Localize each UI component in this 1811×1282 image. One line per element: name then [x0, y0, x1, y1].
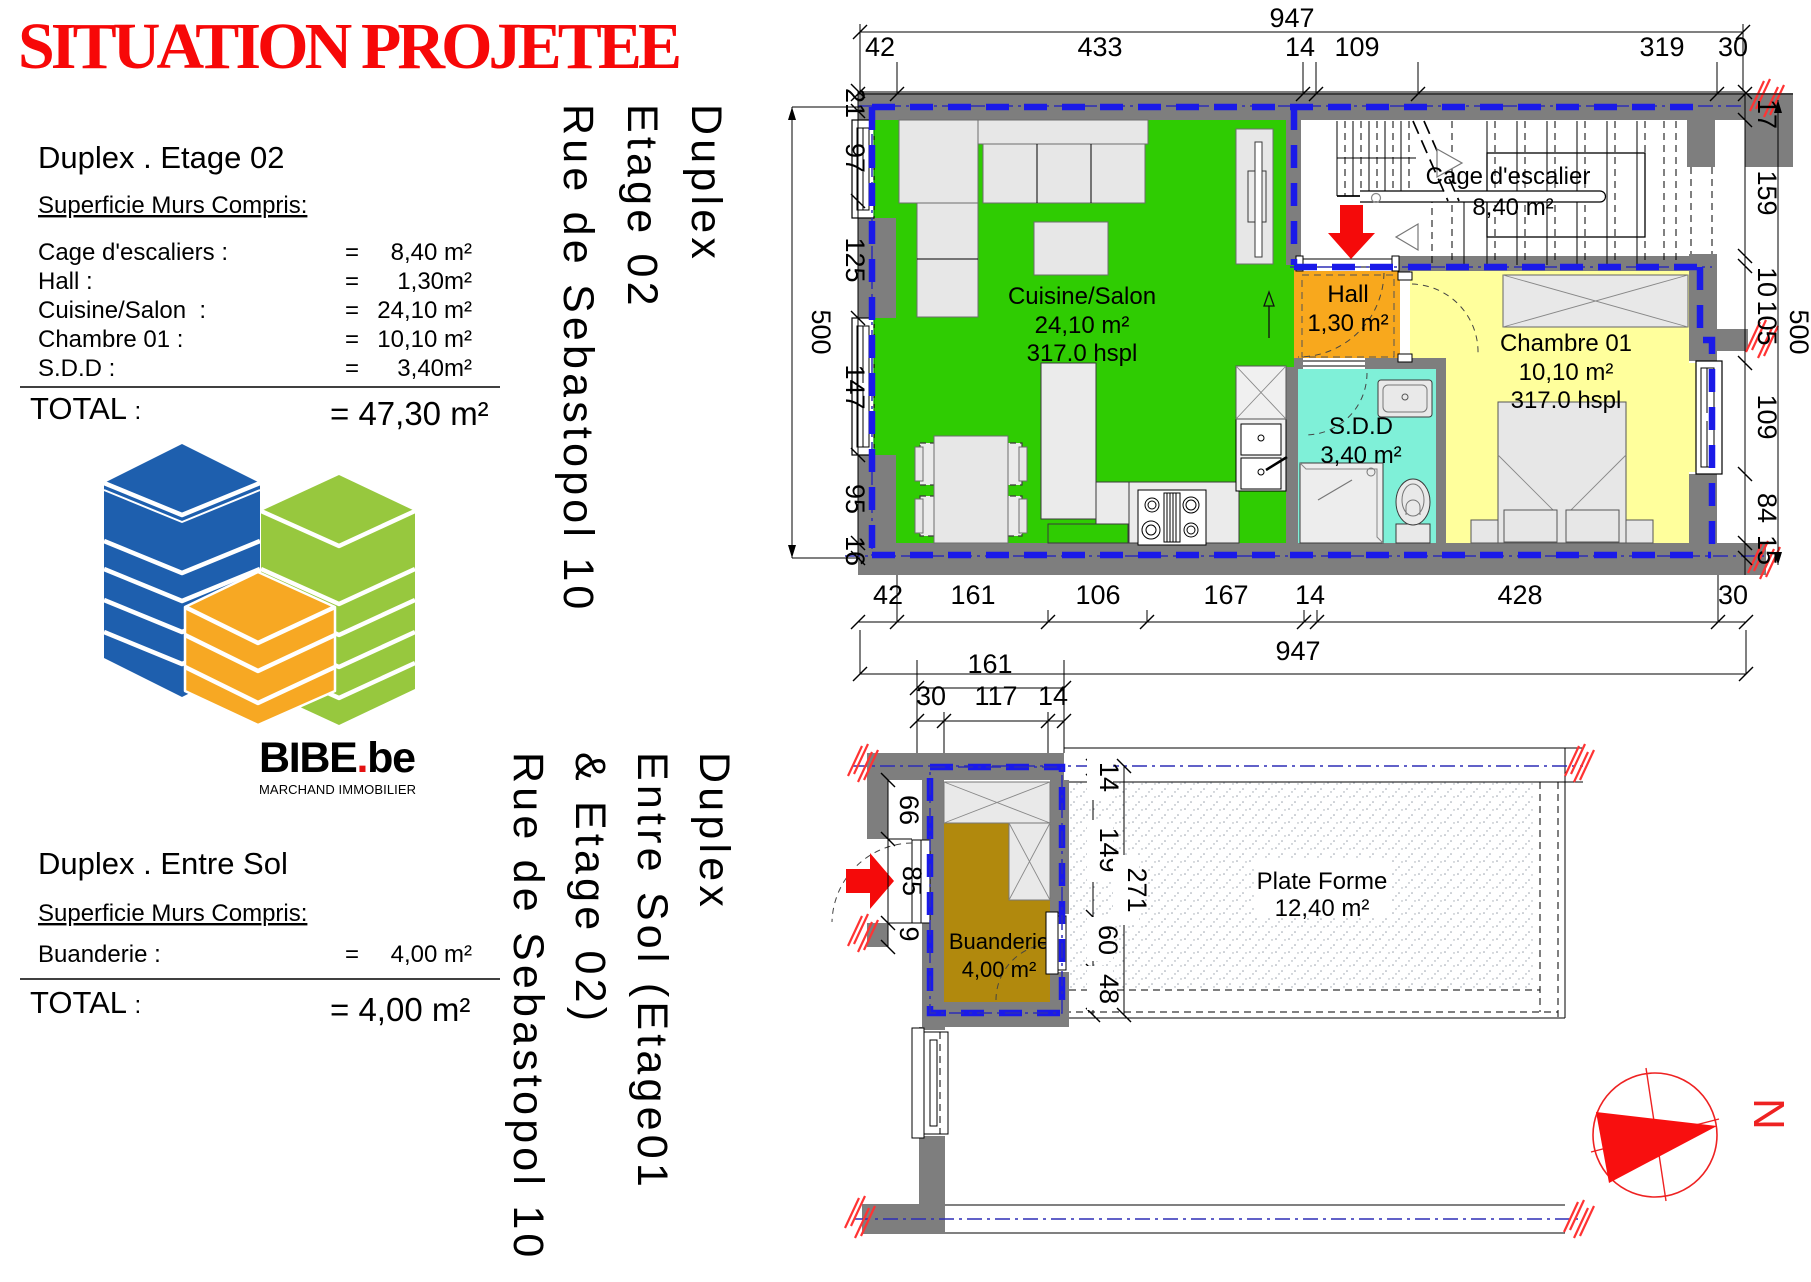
svg-text:14: 14	[1295, 580, 1325, 610]
svg-text:42: 42	[865, 32, 895, 62]
svg-text:97: 97	[840, 143, 870, 173]
svg-text:85: 85	[897, 866, 927, 896]
svg-text:Chambre 01: Chambre 01	[1500, 330, 1632, 357]
svg-text:N: N	[1744, 1098, 1793, 1130]
svg-text:161: 161	[967, 649, 1012, 679]
svg-text:=: =	[345, 355, 359, 382]
svg-text:Buanderie :: Buanderie :	[38, 941, 161, 968]
svg-text:947: 947	[1275, 636, 1320, 666]
svg-text:14: 14	[1285, 32, 1315, 62]
svg-text:3,40m²: 3,40m²	[397, 355, 472, 382]
svg-text:947: 947	[1269, 3, 1314, 33]
svg-text:Cuisine/Salon :: Cuisine/Salon :	[38, 297, 206, 324]
svg-text:10,10 m²: 10,10 m²	[377, 326, 472, 353]
svg-text:Duplex: Duplex	[690, 752, 738, 911]
svg-text:1,30 m²: 1,30 m²	[1307, 310, 1388, 337]
svg-text:95: 95	[840, 484, 870, 514]
svg-text:24,10 m²: 24,10 m²	[377, 297, 472, 324]
svg-text:& Etage 02): & Etage 02)	[566, 752, 614, 1025]
svg-text:Entre Sol (Etage01: Entre Sol (Etage01	[628, 752, 676, 1191]
svg-text:66: 66	[894, 795, 924, 825]
svg-text:Plate Forme: Plate Forme	[1257, 868, 1388, 895]
svg-text:SITUATION PROJETEE: SITUATION PROJETEE	[18, 10, 682, 83]
svg-text:8,40 m²: 8,40 m²	[391, 239, 472, 266]
svg-text:Buanderie: Buanderie	[949, 929, 1049, 954]
svg-text:30: 30	[916, 681, 946, 711]
svg-text:Cuisine/Salon: Cuisine/Salon	[1008, 283, 1156, 310]
svg-text:42: 42	[873, 580, 903, 610]
svg-text:147: 147	[840, 364, 870, 409]
svg-text:12,40 m²: 12,40 m²	[1275, 895, 1370, 922]
svg-text:60: 60	[1093, 925, 1123, 955]
svg-text:109: 109	[1334, 32, 1379, 62]
svg-text:167: 167	[1203, 580, 1248, 610]
svg-text:Chambre 01 :: Chambre 01 :	[38, 326, 183, 353]
svg-text:161: 161	[950, 580, 995, 610]
svg-text:4,00 m²: 4,00 m²	[962, 957, 1037, 982]
svg-text:1,30m²: 1,30m²	[397, 268, 472, 295]
svg-text:3,40 m²: 3,40 m²	[1320, 442, 1401, 469]
svg-text:433: 433	[1077, 32, 1122, 62]
svg-text:428: 428	[1497, 580, 1542, 610]
svg-text:500: 500	[806, 309, 836, 354]
svg-text:319: 319	[1639, 32, 1684, 62]
svg-text:Duplex . Etage 02: Duplex . Etage 02	[38, 140, 284, 175]
svg-text:317.0 hspl: 317.0 hspl	[1027, 340, 1138, 367]
svg-text:30: 30	[1718, 580, 1748, 610]
svg-text:Duplex . Entre Sol: Duplex . Entre Sol	[38, 846, 288, 881]
svg-text:4,00 m²: 4,00 m²	[391, 941, 472, 968]
svg-text:Hall :: Hall :	[38, 268, 93, 295]
svg-text:Cage d'escaliers :: Cage d'escaliers :	[38, 239, 228, 266]
svg-text:30: 30	[1718, 32, 1748, 62]
svg-text:125: 125	[840, 237, 870, 282]
svg-text:S.D.D: S.D.D	[1329, 413, 1393, 440]
svg-text:TOTAL :: TOTAL :	[30, 391, 141, 426]
svg-text:Cage d'escalier: Cage d'escalier	[1426, 163, 1591, 190]
svg-text:Duplex: Duplex	[682, 104, 730, 263]
svg-text:Hall: Hall	[1327, 281, 1368, 308]
svg-text:14: 14	[1094, 762, 1124, 792]
svg-text:8,40 m²: 8,40 m²	[1472, 194, 1553, 221]
svg-text:Superficie Murs Compris:: Superficie Murs Compris:	[38, 192, 307, 219]
svg-text:Rue de Sebastopol 10: Rue de Sebastopol 10	[504, 752, 552, 1262]
svg-text:=: =	[345, 326, 359, 353]
svg-text:106: 106	[1075, 580, 1120, 610]
svg-text:9: 9	[894, 926, 924, 941]
svg-text:10,10 m²: 10,10 m²	[1519, 359, 1614, 386]
svg-text:317.0 hspl: 317.0 hspl	[1511, 387, 1622, 414]
svg-text:21: 21	[840, 88, 870, 118]
svg-text:Rue de Sebastopol 10: Rue de Sebastopol 10	[554, 104, 602, 614]
svg-text:=: =	[345, 268, 359, 295]
svg-text:=: =	[345, 941, 359, 968]
svg-text:= 4,00 m²: = 4,00 m²	[330, 991, 470, 1028]
svg-text:500: 500	[1784, 309, 1811, 354]
svg-text:S.D.D :: S.D.D :	[38, 355, 115, 382]
svg-text:Etage 02: Etage 02	[618, 104, 666, 310]
svg-text:Superficie Murs Compris:: Superficie Murs Compris:	[38, 900, 307, 927]
svg-text:117: 117	[974, 681, 1017, 711]
svg-text:TOTAL :: TOTAL :	[30, 985, 141, 1020]
svg-text:MARCHAND IMMOBILIER: MARCHAND IMMOBILIER	[259, 782, 416, 797]
svg-text:14: 14	[1038, 681, 1068, 711]
svg-text:24,10 m²: 24,10 m²	[1035, 312, 1130, 339]
svg-text:=: =	[345, 297, 359, 324]
svg-text:= 47,30 m²: = 47,30 m²	[330, 395, 489, 432]
svg-text:271: 271	[1122, 867, 1152, 912]
svg-text:=: =	[345, 239, 359, 266]
svg-text:48: 48	[1094, 974, 1124, 1004]
svg-text:BIBE.be: BIBE.be	[259, 734, 416, 782]
